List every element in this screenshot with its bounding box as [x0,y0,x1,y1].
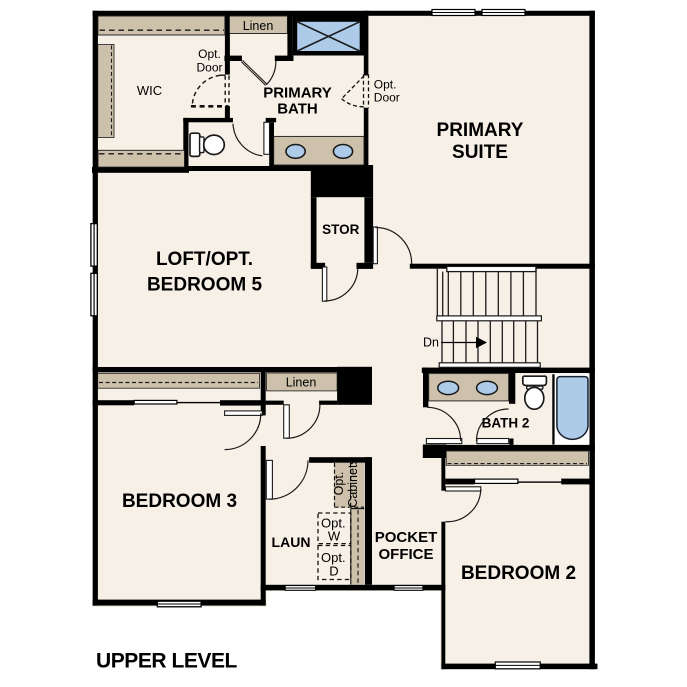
svg-text:Dn: Dn [423,336,439,350]
svg-text:Linen: Linen [286,376,317,390]
svg-text:BATH: BATH [277,101,318,118]
svg-text:Door: Door [196,60,222,74]
svg-text:PRIMARY: PRIMARY [437,120,524,141]
svg-text:STOR: STOR [322,222,360,237]
svg-text:D: D [329,564,338,579]
svg-text:Door: Door [374,91,400,105]
svg-text:Linen: Linen [243,19,274,33]
svg-text:PRIMARY: PRIMARY [263,85,332,102]
svg-text:POCKET: POCKET [375,529,438,546]
svg-text:LOFT/OPT.: LOFT/OPT. [156,249,253,270]
svg-text:Opt.: Opt. [198,47,221,61]
svg-text:Opt.: Opt. [332,472,346,496]
svg-text:WIC: WIC [137,83,162,98]
svg-text:SUITE: SUITE [452,142,508,163]
svg-text:BATH 2: BATH 2 [482,415,530,430]
svg-text:BEDROOM 2: BEDROOM 2 [461,563,576,584]
svg-text:Opt.: Opt. [374,77,397,91]
svg-text:UPPER LEVEL: UPPER LEVEL [96,650,238,673]
svg-text:BEDROOM 3: BEDROOM 3 [122,491,237,512]
svg-text:LAUN: LAUN [272,534,311,550]
svg-text:Cabinets: Cabinets [346,458,360,507]
svg-text:W: W [328,528,341,543]
svg-text:BEDROOM 5: BEDROOM 5 [147,275,263,296]
svg-text:OFFICE: OFFICE [379,546,434,563]
